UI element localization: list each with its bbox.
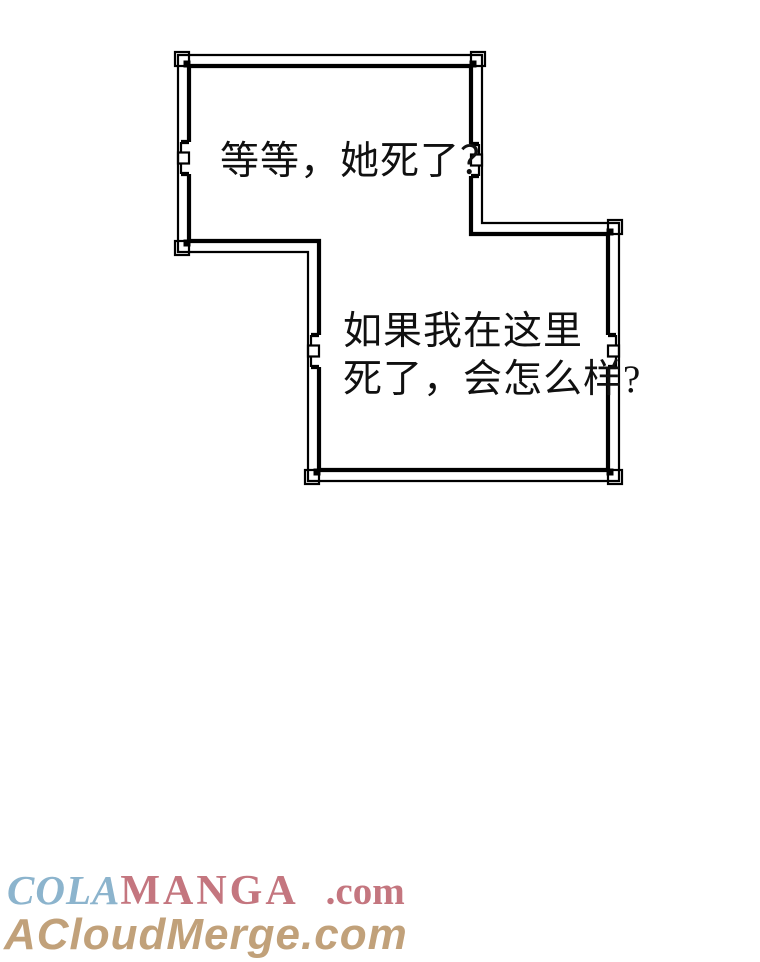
bubble1-dialogue-text: 等等，她死了？ — [220, 138, 500, 186]
watermark-acloudmerge: ACloudMerge.com — [4, 910, 408, 960]
watermark-manga-text: MANGA — [120, 867, 298, 915]
watermark-colamanga: COLAMANGA.com — [7, 866, 405, 915]
comic-page[interactable]: 等等，她死了？ 如果我在这里 死了，会怎么样? COLAMANGA.com AC… — [0, 0, 760, 962]
frame-inner-outline — [189, 66, 608, 470]
bubble2-dialogue-line1: 如果我在这里 — [343, 308, 641, 356]
bubble2-dialogue: 如果我在这里 死了，会怎么样? — [343, 308, 641, 404]
bubble2-dialogue-line2: 死了，会怎么样? — [343, 356, 641, 404]
edge-ornament-panel2-left — [308, 335, 322, 367]
edge-ornament-panel1-left — [178, 142, 192, 174]
frame-outer-outline — [178, 55, 619, 481]
watermark-dotcom-text: .com — [326, 869, 405, 914]
speech-bubble-frame — [0, 0, 760, 540]
watermark-cola-text: COLA — [7, 866, 120, 914]
